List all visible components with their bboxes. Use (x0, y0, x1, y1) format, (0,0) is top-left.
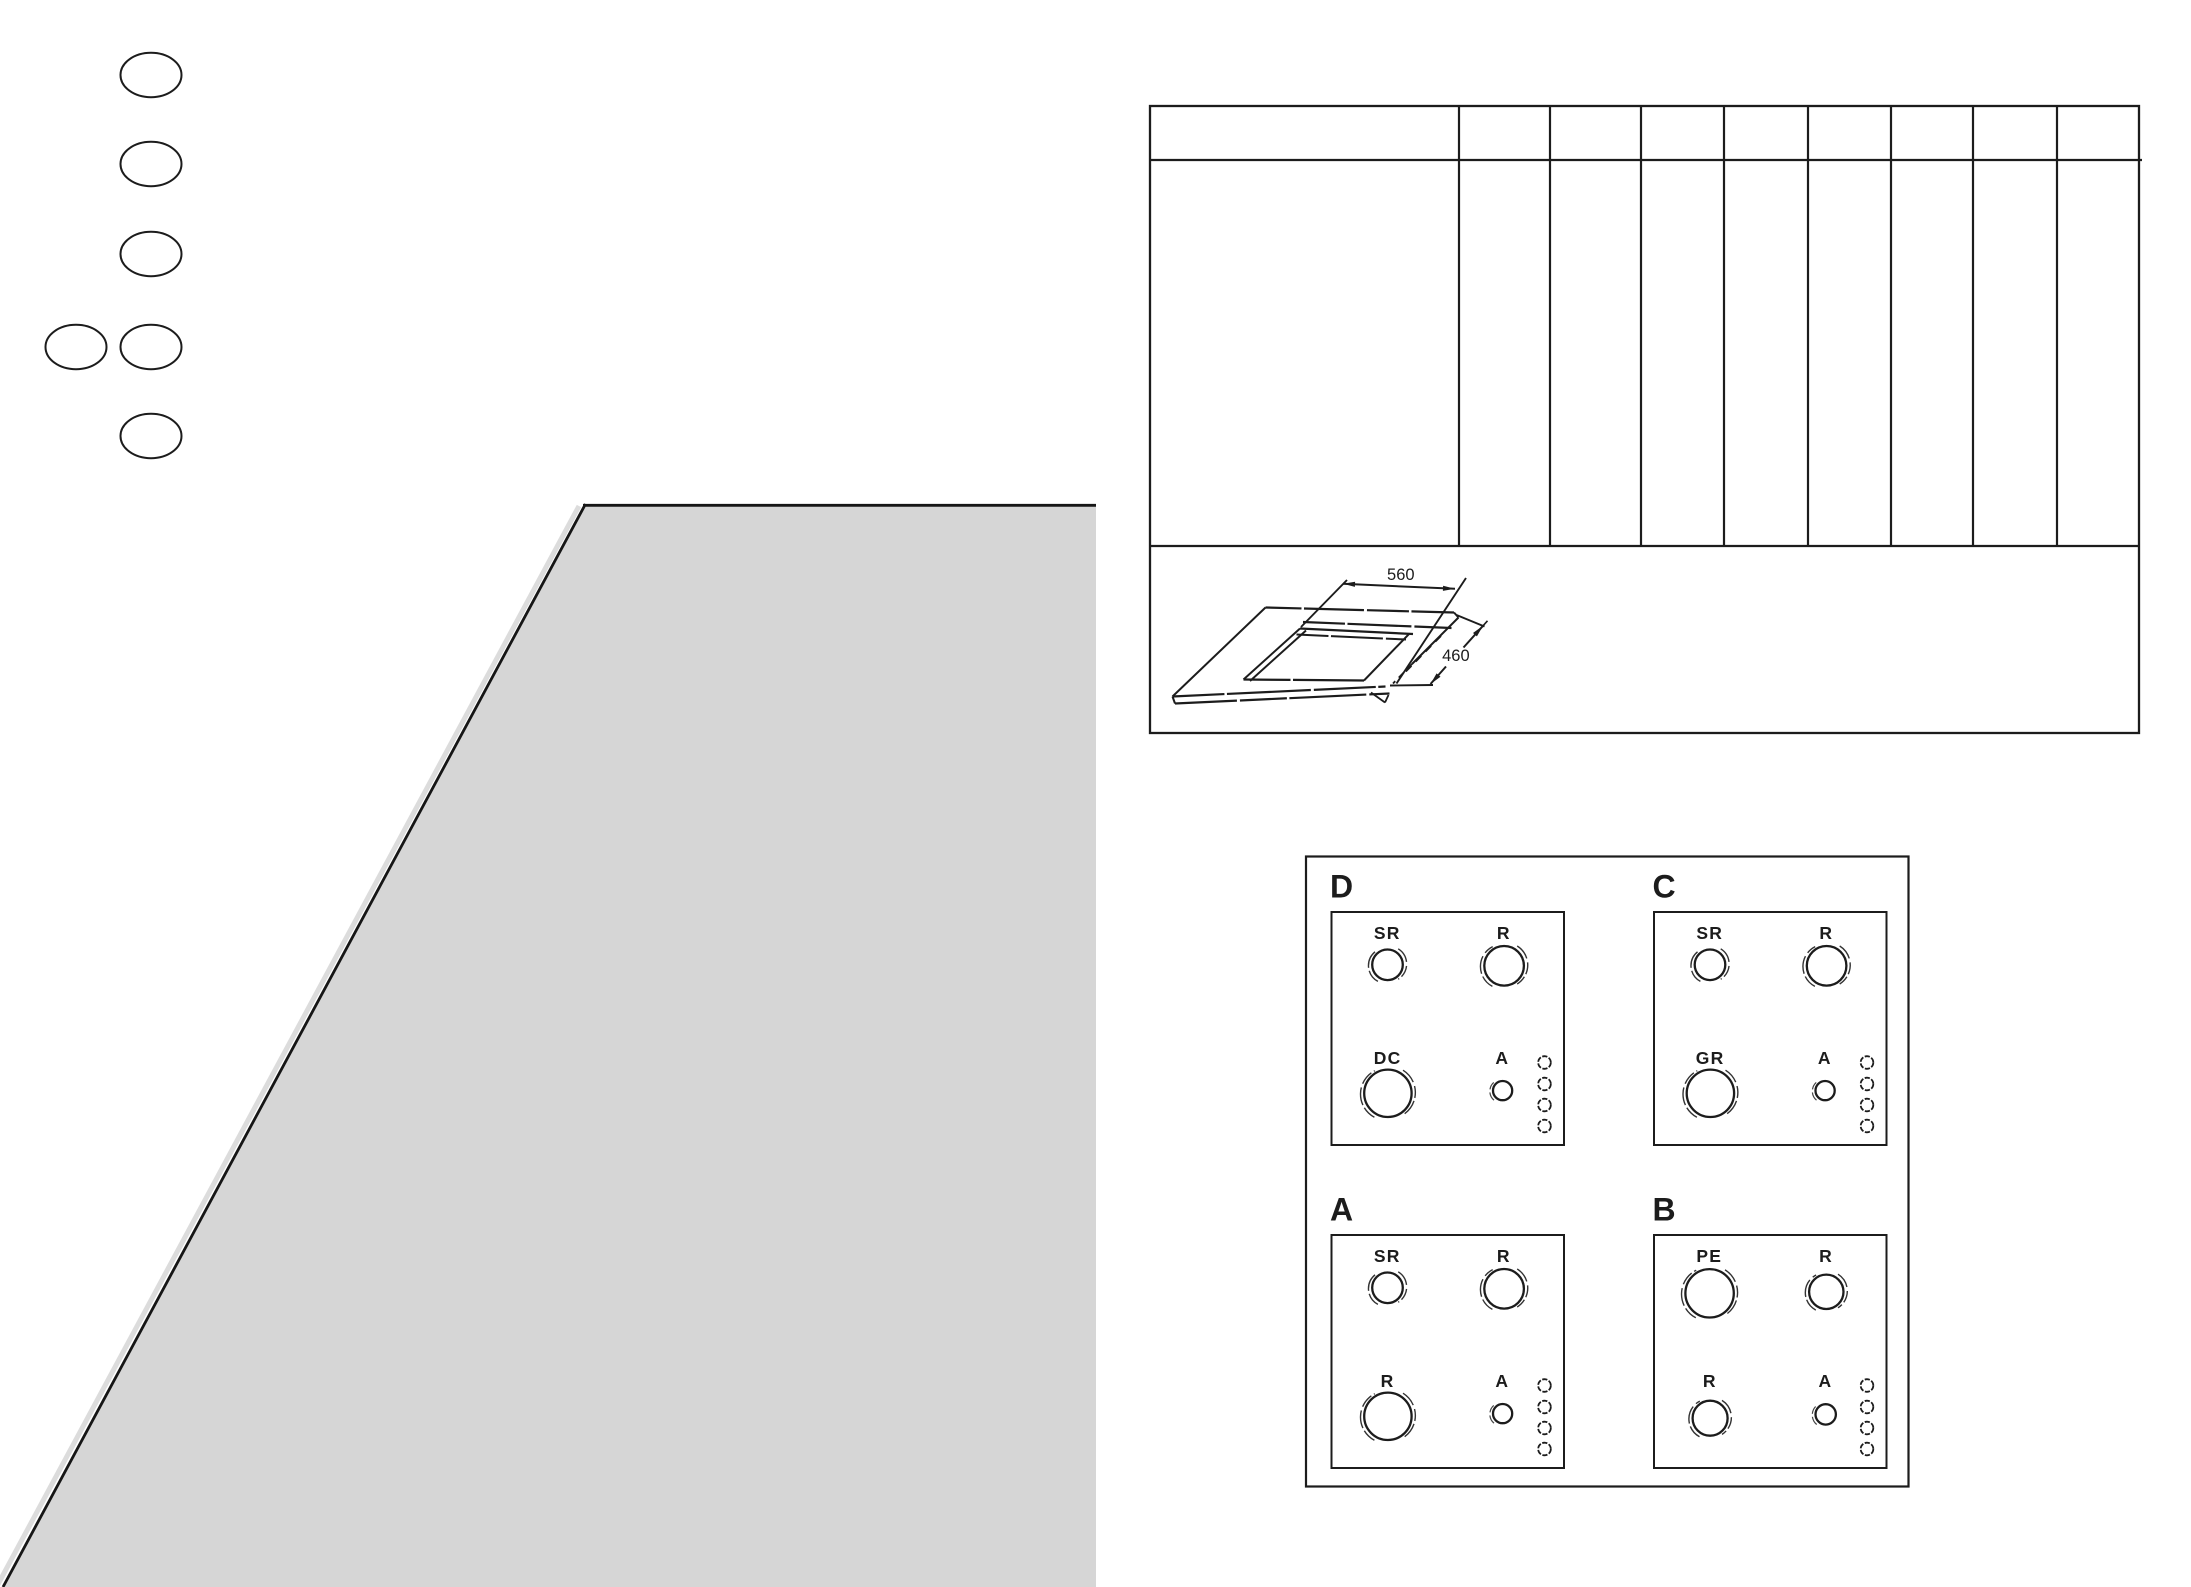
svg-text:DC: DC (1374, 1048, 1402, 1068)
svg-text:SR: SR (1696, 923, 1723, 943)
svg-text:A: A (1818, 1048, 1832, 1068)
svg-text:460: 460 (1442, 647, 1470, 665)
svg-text:R: R (1819, 923, 1833, 943)
svg-text:R: R (1819, 1246, 1833, 1266)
svg-text:B: B (1653, 1192, 1676, 1228)
svg-text:D: D (1330, 869, 1353, 905)
svg-text:GR: GR (1696, 1048, 1725, 1068)
svg-text:A: A (1818, 1371, 1832, 1391)
svg-text:A: A (1495, 1048, 1509, 1068)
svg-text:R: R (1497, 1246, 1511, 1266)
svg-text:560: 560 (1387, 566, 1415, 584)
svg-text:A: A (1495, 1371, 1509, 1391)
svg-text:PE: PE (1696, 1246, 1722, 1266)
svg-text:SR: SR (1374, 923, 1401, 943)
svg-text:C: C (1653, 869, 1676, 905)
svg-text:R: R (1497, 923, 1511, 943)
svg-text:SR: SR (1374, 1246, 1401, 1266)
svg-text:R: R (1703, 1371, 1717, 1391)
svg-text:R: R (1381, 1371, 1395, 1391)
svg-text:A: A (1330, 1192, 1353, 1228)
